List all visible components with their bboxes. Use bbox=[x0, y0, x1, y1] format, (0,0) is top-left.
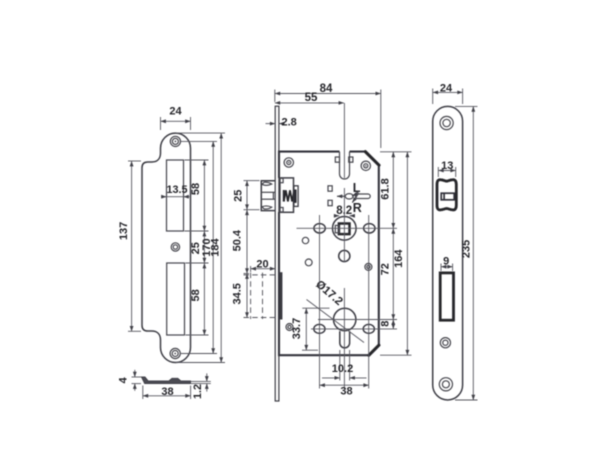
svg-text:84: 84 bbox=[320, 83, 333, 95]
svg-text:235: 235 bbox=[461, 240, 473, 258]
svg-text:61.8: 61.8 bbox=[379, 178, 391, 199]
svg-text:58: 58 bbox=[190, 289, 202, 301]
svg-text:24: 24 bbox=[440, 82, 453, 94]
svg-text:10.2: 10.2 bbox=[332, 363, 353, 375]
svg-text:13.5: 13.5 bbox=[166, 184, 187, 196]
svg-text:8: 8 bbox=[379, 321, 391, 327]
svg-text:R: R bbox=[353, 201, 362, 215]
svg-text:20: 20 bbox=[256, 259, 268, 271]
svg-text:137: 137 bbox=[118, 222, 130, 240]
svg-text:13: 13 bbox=[441, 160, 453, 172]
svg-text:24: 24 bbox=[169, 106, 182, 118]
svg-text:34.5: 34.5 bbox=[232, 283, 244, 304]
svg-text:58: 58 bbox=[190, 183, 202, 195]
svg-text:164: 164 bbox=[393, 249, 405, 268]
svg-text:33.7: 33.7 bbox=[291, 318, 303, 339]
svg-text:50.4: 50.4 bbox=[232, 229, 244, 251]
svg-text:25: 25 bbox=[232, 190, 244, 202]
svg-text:38: 38 bbox=[161, 386, 173, 398]
svg-text:2.8: 2.8 bbox=[282, 117, 297, 129]
svg-text:1.2: 1.2 bbox=[192, 384, 204, 399]
svg-text:9: 9 bbox=[443, 255, 449, 267]
svg-text:72: 72 bbox=[379, 263, 391, 275]
svg-text:184: 184 bbox=[210, 238, 222, 257]
svg-text:38: 38 bbox=[340, 386, 352, 398]
svg-text:55: 55 bbox=[305, 92, 318, 104]
svg-text:4: 4 bbox=[117, 377, 129, 383]
svg-text:25: 25 bbox=[190, 242, 202, 254]
